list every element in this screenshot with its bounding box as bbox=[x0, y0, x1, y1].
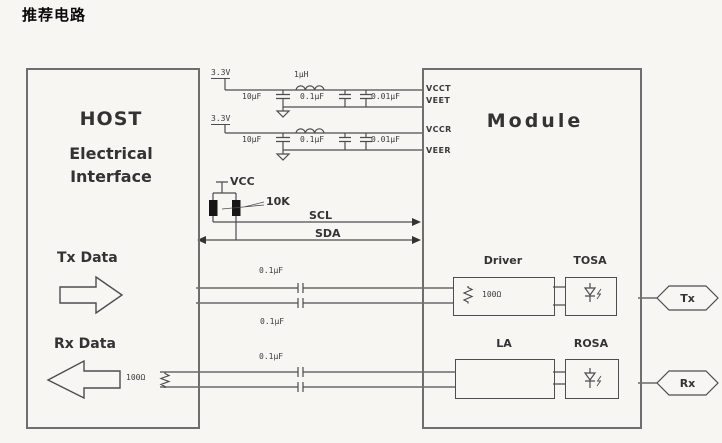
cap-0p1uF-symbol bbox=[339, 133, 351, 150]
tx-port-label: Tx bbox=[657, 293, 718, 304]
rx-filter-cap1-label: 10μF bbox=[242, 136, 261, 144]
scl-arrowhead bbox=[412, 218, 421, 226]
driver-box bbox=[453, 277, 555, 316]
circuit-diagram-page: 推荐电路 HOST Electrical Interface Tx Data R… bbox=[0, 0, 722, 443]
page-title: 推荐电路 bbox=[22, 8, 86, 23]
cap-10uF-symbol bbox=[276, 133, 290, 150]
rx-cap-top-label: 0.1μF bbox=[259, 353, 283, 361]
ground-icon bbox=[277, 154, 289, 160]
inductor-symbol bbox=[296, 129, 324, 133]
rx-filter-cap2-label: 0.1μF bbox=[300, 136, 324, 144]
tx-filter-cap1-label: 10μF bbox=[242, 93, 261, 101]
sda-right-arrowhead bbox=[412, 236, 421, 244]
tx-cap-bottom-label: 0.1μF bbox=[260, 318, 284, 326]
rx-supply-label: 3.3V bbox=[211, 115, 230, 125]
tx-filter-cap3-label: 0.01μF bbox=[371, 93, 400, 101]
la-box bbox=[455, 359, 555, 399]
rosa-label: ROSA bbox=[565, 338, 617, 349]
cap-0p1uF-symbol bbox=[339, 90, 351, 107]
tx-supply-label: 3.3V bbox=[211, 69, 230, 79]
driver-label: Driver bbox=[453, 255, 553, 266]
tx-filter-cap2-label: 0.1μF bbox=[300, 93, 324, 101]
port-veet: VEET bbox=[426, 97, 450, 105]
tx-filter-inductor-label: 1μH bbox=[294, 71, 308, 79]
rosa-box bbox=[565, 359, 619, 399]
rx-port-label: Rx bbox=[657, 378, 718, 389]
rx-filter-cap3-label: 0.01μF bbox=[371, 136, 400, 144]
port-vcct: VCCT bbox=[426, 85, 451, 93]
rx-data-label: Rx Data bbox=[54, 337, 116, 351]
10k-pointer-lines bbox=[222, 202, 264, 209]
scl-label: SCL bbox=[309, 210, 332, 221]
driver-resistor-label: 100Ω bbox=[482, 291, 501, 299]
host-subtitle-line1: Electrical bbox=[26, 146, 196, 162]
vcc-label: VCC bbox=[230, 176, 255, 187]
tosa-label: TOSA bbox=[565, 255, 615, 266]
tx-data-label: Tx Data bbox=[57, 251, 118, 265]
port-veer: VEER bbox=[426, 147, 451, 155]
inductor-symbol bbox=[296, 86, 324, 90]
cap-10uF-symbol bbox=[276, 90, 290, 107]
host-subtitle-line2: Interface bbox=[26, 169, 196, 185]
host-title: HOST bbox=[26, 110, 196, 129]
la-label: LA bbox=[455, 338, 553, 349]
sda-label: SDA bbox=[315, 228, 341, 239]
tx-cap-top-label: 0.1μF bbox=[259, 267, 283, 275]
pullup-value-label: 10K bbox=[266, 196, 290, 207]
pullup-resistor-scl bbox=[209, 200, 218, 216]
tosa-box bbox=[565, 277, 617, 316]
ground-icon bbox=[277, 111, 289, 117]
module-title: Module bbox=[432, 112, 638, 131]
port-vccr: VCCR bbox=[426, 126, 452, 134]
rx-termination-label: 100Ω bbox=[126, 374, 145, 382]
